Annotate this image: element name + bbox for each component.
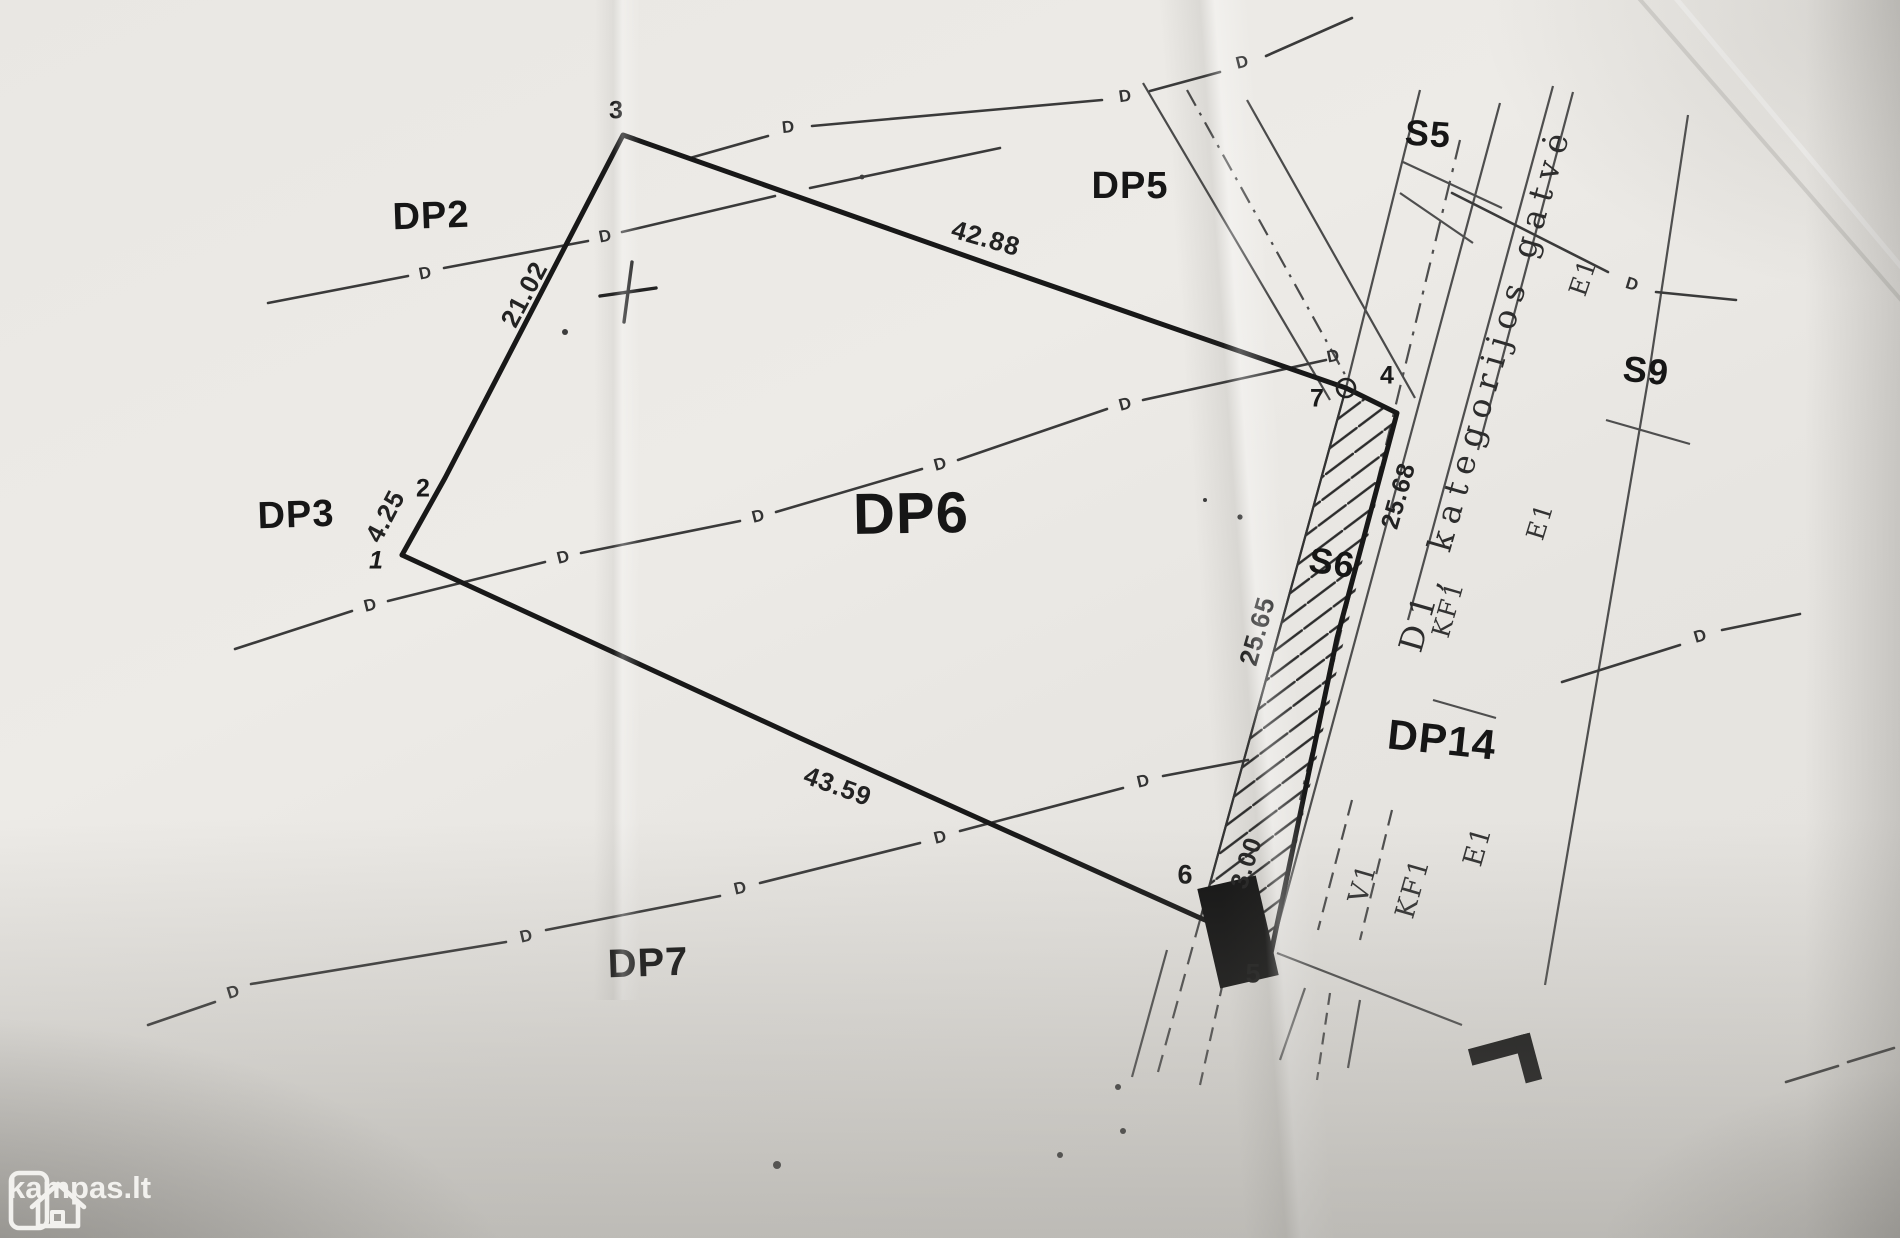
plot-plan-photo: DP2 DP3 DP5 DP6 DP7 DP14 S5 S6 S9 3 2 1 … <box>0 0 1900 1238</box>
ink-specks <box>562 175 1243 1169</box>
north-street-lines <box>1143 83 1415 400</box>
parcel-label-dp2: DP2 <box>392 196 470 237</box>
corner-l-mark <box>1468 1033 1542 1096</box>
vertex-label-2: 2 <box>416 477 430 502</box>
vertex-label-4: 4 <box>1380 364 1394 389</box>
parcel-label-dp7: DP7 <box>607 942 689 985</box>
survey-linework <box>0 0 1900 1238</box>
servitude-label-s9: S9 <box>1621 351 1671 392</box>
vertex-label-7: 7 <box>1310 387 1324 412</box>
survey-cross-icon <box>600 262 656 322</box>
boundary-marker-d: D <box>781 118 795 136</box>
parcel-label-dp6: DP6 <box>853 484 970 544</box>
parcel-label-dp5: DP5 <box>1092 167 1169 205</box>
vertex-label-6: 6 <box>1177 862 1192 889</box>
parcel-label-dp14: DP14 <box>1386 713 1499 766</box>
kampas-house-icon <box>8 1170 90 1232</box>
dashed-boundary-lines <box>148 18 1894 1082</box>
kampas-watermark: kampas.lt <box>8 1170 151 1206</box>
vertex-label-3: 3 <box>609 99 623 124</box>
servitude-label-s6: S6 <box>1307 542 1358 584</box>
boundary-marker-d: D <box>1118 87 1133 106</box>
vertex-label-1: 1 <box>369 549 383 574</box>
parcel-label-dp3: DP3 <box>257 495 335 536</box>
servitude-label-s5: S5 <box>1404 114 1452 153</box>
vertex-label-5: 5 <box>1245 961 1260 988</box>
